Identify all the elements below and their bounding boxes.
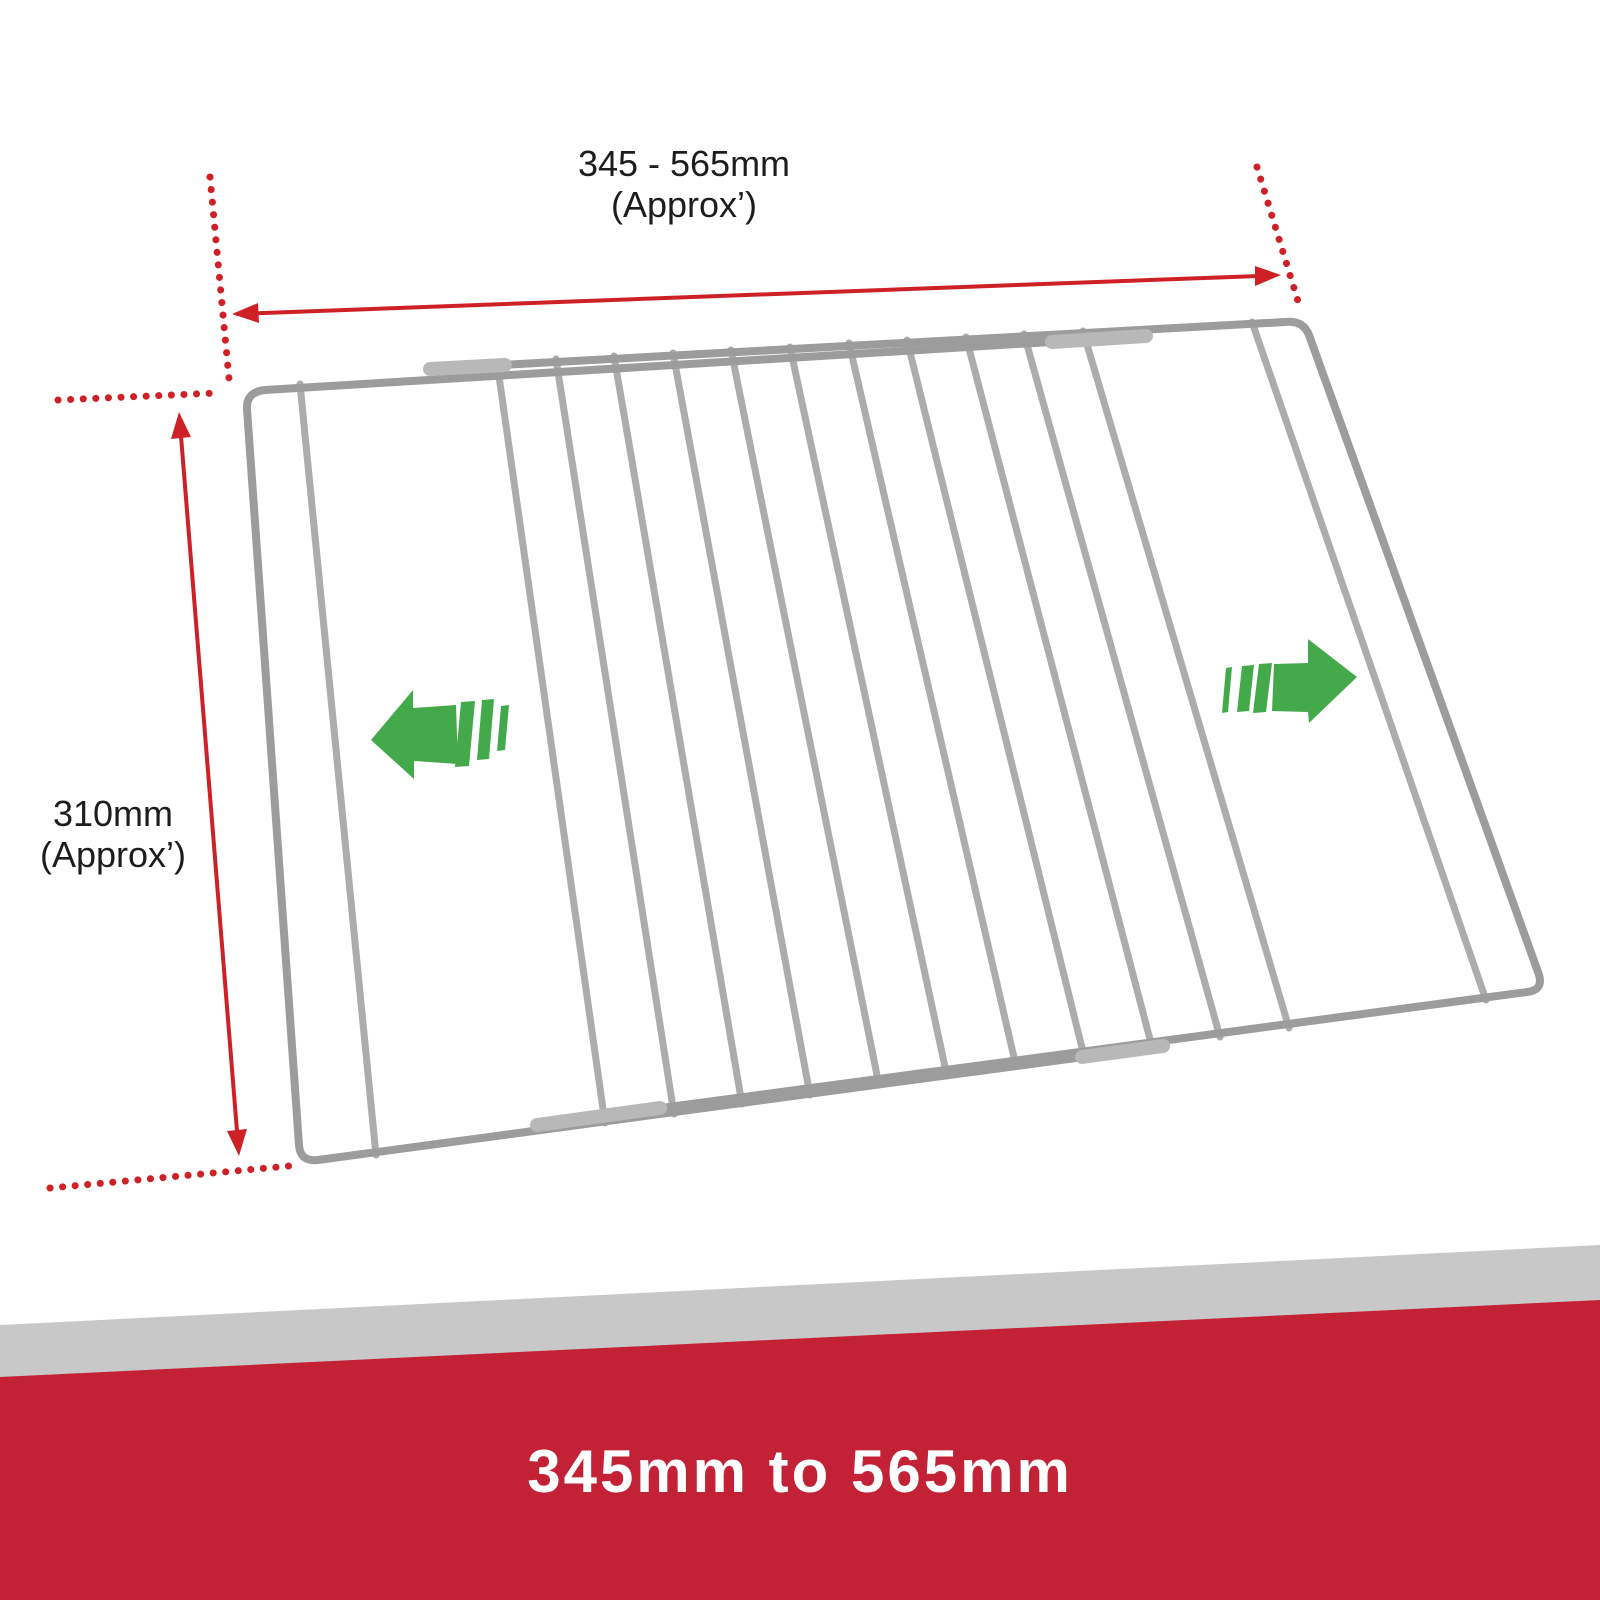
dotted-extension-line bbox=[58, 393, 217, 400]
rack-wire bbox=[731, 350, 879, 1085]
width-value: 345 - 565mm bbox=[578, 143, 790, 184]
rack-wire bbox=[790, 347, 947, 1076]
rack-wire bbox=[614, 356, 742, 1104]
height-dimension-arrow bbox=[171, 412, 247, 1156]
product-dimension-image: 345 - 565mm (Approx’) 310mm (Approx’) 34… bbox=[0, 0, 1600, 1600]
width-qualifier: (Approx’) bbox=[578, 184, 790, 225]
width-dimension-label: 345 - 565mm (Approx’) bbox=[578, 143, 790, 225]
extend-right-arrow-icon bbox=[1222, 639, 1357, 723]
arrow-shaft bbox=[236, 276, 1259, 314]
extend-left-arrow-icon bbox=[371, 690, 509, 779]
motion-bar bbox=[497, 705, 509, 751]
height-value: 310mm bbox=[40, 793, 186, 834]
width-dimension-arrow bbox=[232, 266, 1281, 323]
rack-wire bbox=[1252, 322, 1486, 1000]
arrowhead-down bbox=[227, 1129, 247, 1156]
dotted-extension-line bbox=[50, 1166, 289, 1188]
dotted-extension-line bbox=[1257, 167, 1301, 311]
height-qualifier: (Approx’) bbox=[40, 834, 186, 875]
rack-wire bbox=[673, 353, 810, 1095]
arrowhead-left bbox=[232, 303, 259, 323]
arrow-body bbox=[1272, 639, 1357, 723]
arrow-shaft bbox=[181, 436, 237, 1131]
motion-bar bbox=[1237, 665, 1254, 712]
motion-bar bbox=[1222, 667, 1232, 713]
rack-rear-frame bbox=[428, 322, 1540, 1125]
arrowhead-right bbox=[1255, 266, 1281, 286]
motion-bar bbox=[477, 699, 494, 760]
rack-rail-sleeve bbox=[430, 365, 505, 369]
motion-bar bbox=[455, 701, 475, 767]
rack-wire bbox=[556, 359, 674, 1114]
bottom-banner bbox=[0, 1245, 1600, 1600]
rack-rail-sleeve bbox=[537, 1108, 660, 1125]
oven-shelf-illustration bbox=[0, 0, 1600, 1600]
arrowhead-up bbox=[171, 412, 191, 439]
arrow-body bbox=[371, 690, 458, 779]
banner-text: 345mm to 565mm bbox=[0, 1437, 1600, 1507]
dotted-extension-line bbox=[210, 177, 230, 389]
height-dimension-label: 310mm (Approx’) bbox=[40, 793, 186, 875]
rack-wire bbox=[300, 384, 376, 1155]
rack-wire bbox=[497, 362, 605, 1123]
motion-bar bbox=[1253, 663, 1272, 713]
rack-rail-sleeve bbox=[1052, 336, 1146, 342]
